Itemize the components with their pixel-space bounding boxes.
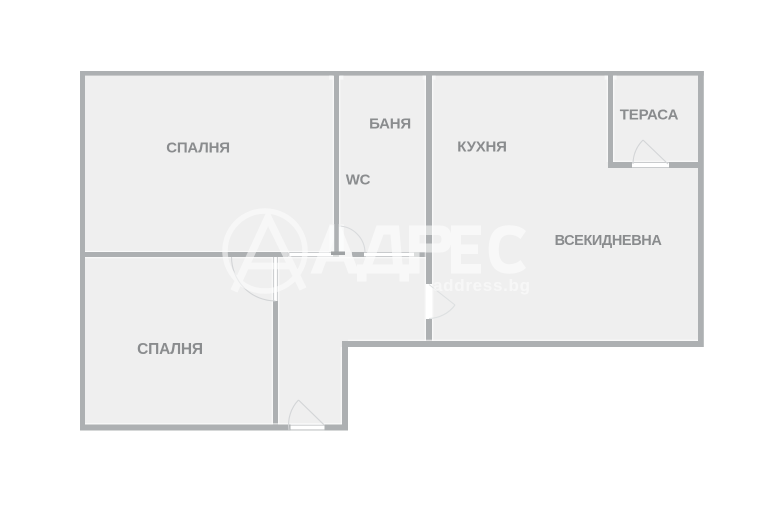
svg-text:address.bg: address.bg — [433, 276, 531, 295]
